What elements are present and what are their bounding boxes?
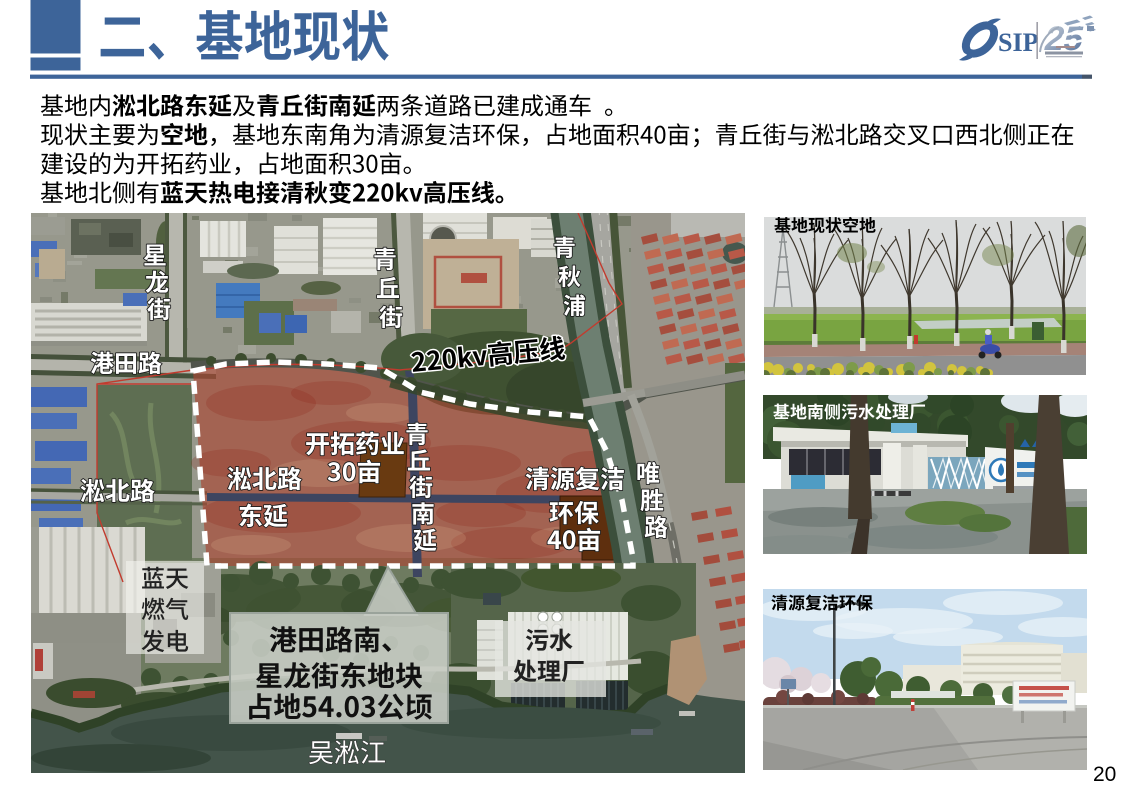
svg-text:SIP: SIP — [998, 28, 1039, 57]
svg-text:20: 20 — [1093, 763, 1116, 786]
